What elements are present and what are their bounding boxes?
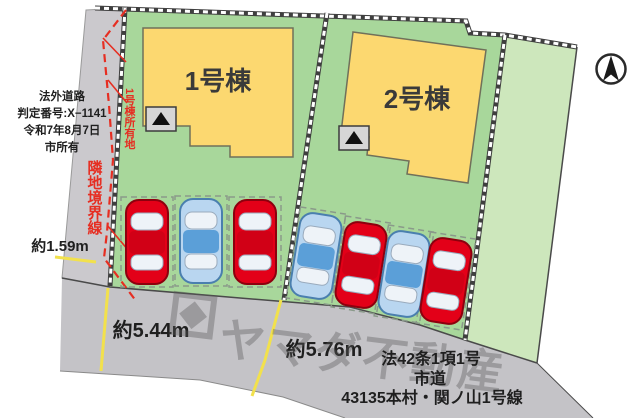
- red-car: [234, 200, 276, 284]
- svg-text:市道: 市道: [414, 369, 446, 388]
- dim-left-width: 約1.59m: [31, 237, 89, 255]
- building-2-entrance-marker: [339, 126, 369, 150]
- svg-text:判定番号:X−1141: 判定番号:X−1141: [17, 106, 107, 120]
- north-compass-icon: [597, 55, 626, 84]
- bldg1-owned-land-label: 1号棟所有地: [123, 88, 136, 149]
- svg-text:法外道路: 法外道路: [39, 89, 85, 103]
- building-2-label: 2号棟: [384, 84, 451, 114]
- site-plan-svg: 1号棟 2号棟 法外道路 判定番号:X−1141 令和7年8月7日 市所有 1号…: [0, 0, 640, 418]
- svg-text:令和7年8月7日: 令和7年8月7日: [23, 123, 101, 137]
- site-plan-canvas: 1号棟 2号棟 法外道路 判定番号:X−1141 令和7年8月7日 市所有 1号…: [0, 0, 640, 418]
- blue-car: [180, 199, 222, 283]
- neighbor-boundary-label: 隣地境界線: [86, 159, 103, 236]
- svg-text:市所有: 市所有: [45, 140, 80, 154]
- svg-text:法42条1項1号: 法42条1項1号: [381, 349, 481, 368]
- red-car: [126, 200, 168, 284]
- svg-text:43135本村・関ノ山1号線: 43135本村・関ノ山1号線: [341, 388, 522, 407]
- building-1-entrance-marker: [146, 107, 176, 131]
- building-1-label: 1号棟: [185, 66, 252, 96]
